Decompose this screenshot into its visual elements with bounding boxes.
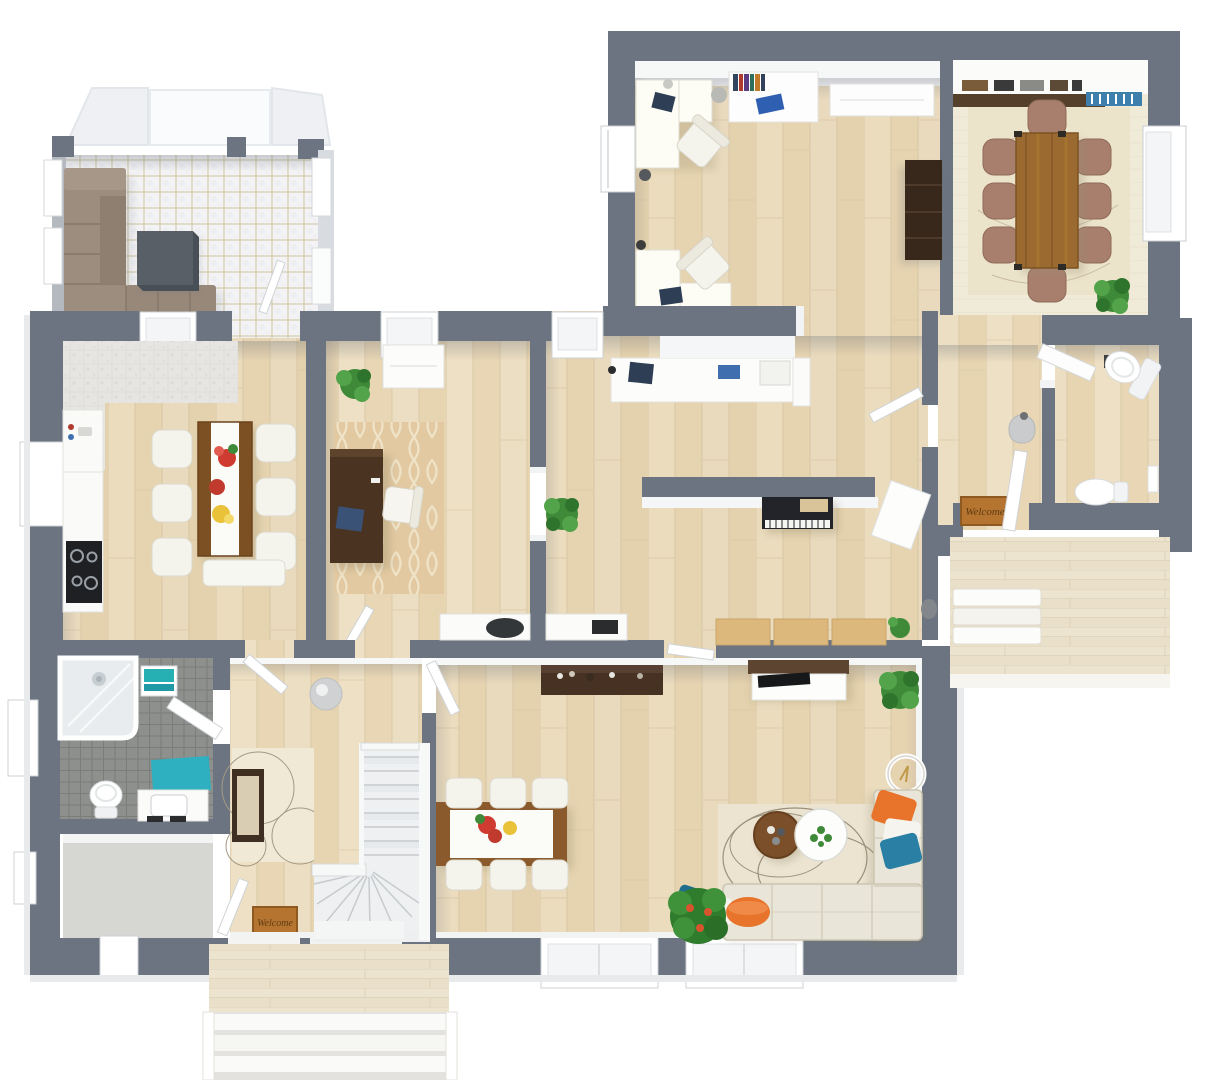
svg-text:Welcome: Welcome — [965, 506, 1004, 518]
svg-text:Welcome: Welcome — [257, 918, 293, 929]
